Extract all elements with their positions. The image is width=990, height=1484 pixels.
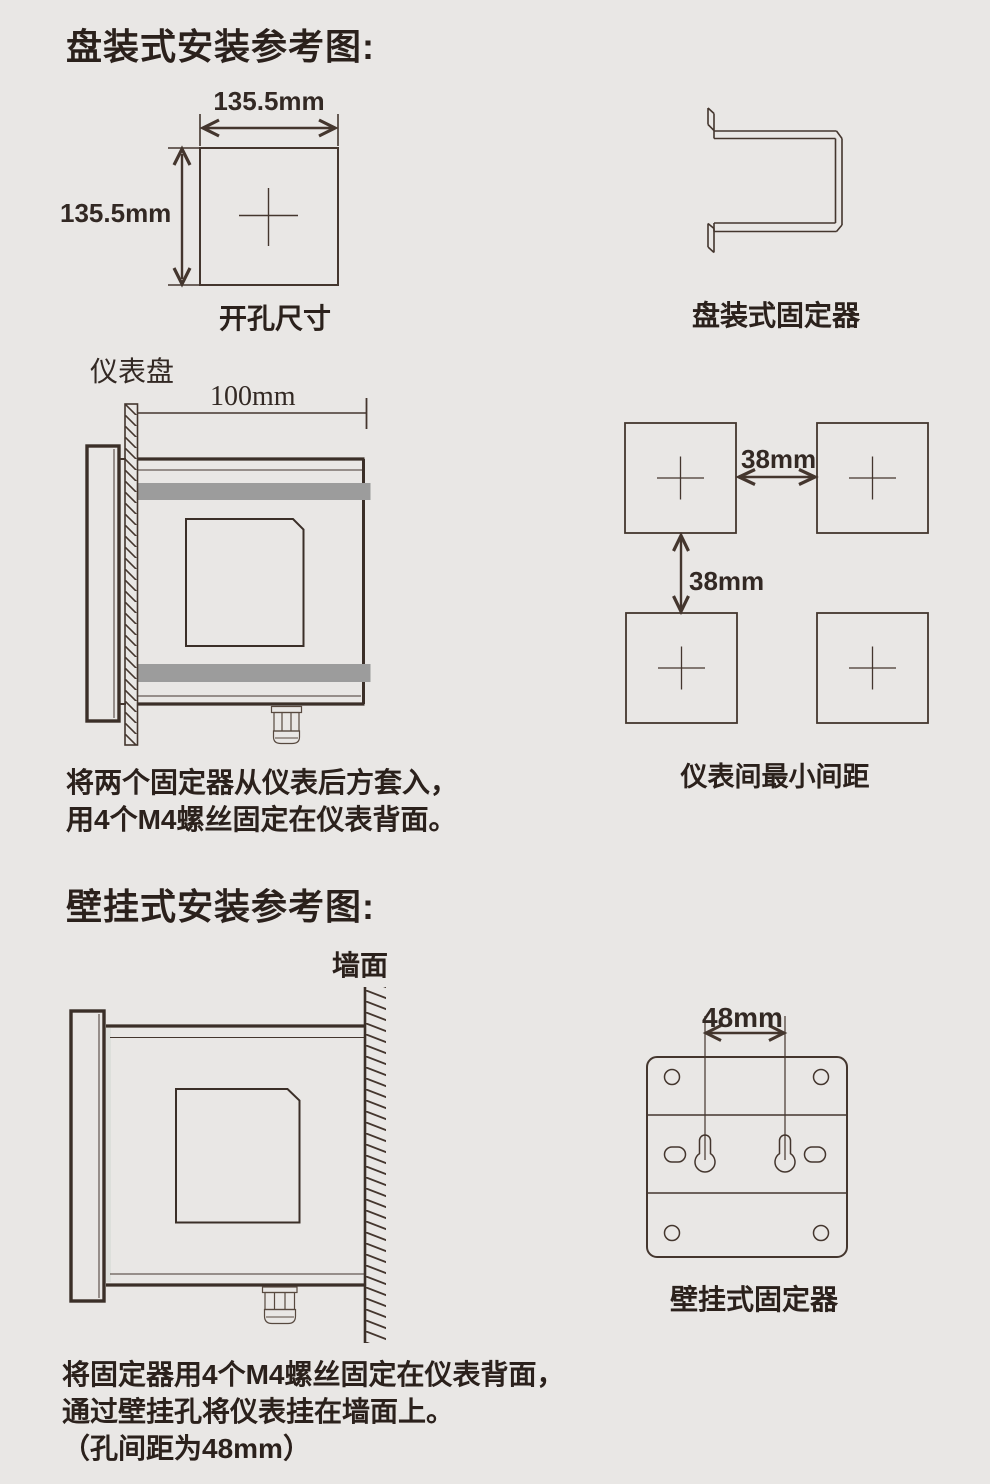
spacing-horizontal-dim: 38mm [741,444,816,475]
case-inner-window [176,1089,300,1223]
spacing-caption: 仪表间最小间距 [655,755,895,794]
screw-hole [665,1226,680,1241]
wall-instruction: 将固定器用4个M4螺丝固定在仪表背面， 通过壁挂孔将仪表挂在墙面上。 （孔间距为… [62,1356,564,1467]
cutout-height-dim: 135.5mm [60,198,171,229]
panel-section-hatch [125,404,138,745]
panel-fixator-caption: 盘装式固定器 [656,294,896,334]
wall-hatch [365,987,386,1343]
screw-hole [814,1070,829,1085]
spacing-vertical-dim: 38mm [689,566,764,597]
fixator-band-bottom [138,664,371,682]
cutout-caption: 开孔尺寸 [195,297,355,337]
wall-side-view [71,987,386,1343]
case-inner-window [186,519,304,646]
cable-gland [263,1287,298,1324]
screw-hole [665,1070,680,1085]
hole-pitch-dim: 48mm [702,1002,783,1034]
wall-label: 墙面 [332,944,388,984]
fixator-band-top [138,483,371,500]
cutout-width-dim: 135.5mm [189,86,349,117]
cable-gland [272,707,302,744]
wall-section-title: 壁挂式安装参考图: [66,878,375,930]
panel-side-view [87,398,371,745]
wall-fixator-plate [647,1016,847,1257]
side-slot [805,1147,826,1162]
panel-board-label: 仪表盘 [90,350,174,390]
panel-instruction: 将两个固定器从仪表后方套入， 用4个M4螺丝固定在仪表背面。 [66,764,458,838]
depth-dim: 100mm [210,381,296,413]
panel-fixator-bracket [708,108,842,253]
panel-section-title: 盘装式安装参考图: [66,18,375,70]
screw-hole [814,1226,829,1241]
cutout-diagram [168,114,338,285]
wall-fixator-caption: 壁挂式固定器 [634,1278,874,1318]
manual-page: { "panel": { "title": "盘装式安装参考图:", "cuto… [0,0,990,1484]
side-slot [665,1147,686,1162]
